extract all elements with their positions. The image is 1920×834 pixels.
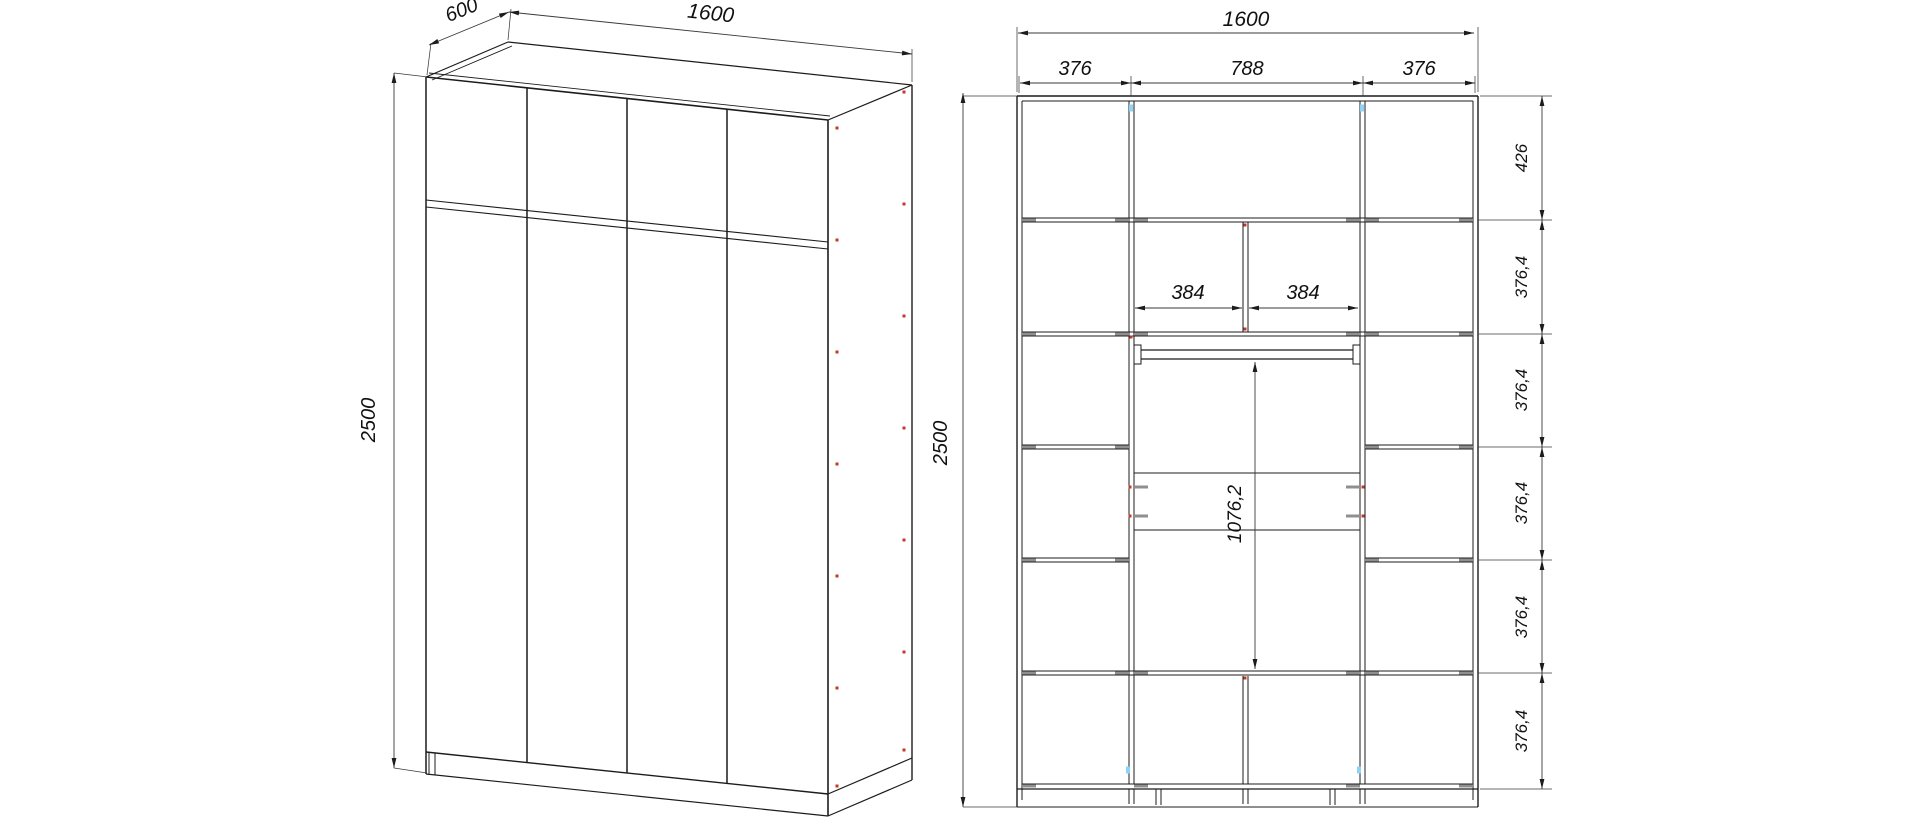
- connector-mark: [1459, 785, 1473, 788]
- structure-line: [429, 73, 830, 116]
- dimension-arrow: [1135, 306, 1145, 311]
- fastener-hole-mark: [1244, 224, 1247, 227]
- structure-line: [828, 758, 912, 794]
- fastener-hole-mark: [836, 785, 839, 788]
- hinge-mark: [1129, 105, 1133, 112]
- extension-line: [394, 768, 427, 773]
- dimension-label-hanging-height: 1076,2: [1225, 485, 1246, 544]
- dimension-arrow: [1540, 560, 1545, 570]
- dimension-label-row-5: 376,4: [1512, 596, 1531, 639]
- dimension-arrow: [1540, 220, 1545, 230]
- fastener-hole-mark: [1130, 336, 1133, 339]
- dimension-label-cell-right: 384: [1286, 282, 1319, 304]
- dimension-label-col-left: 376: [1058, 58, 1092, 80]
- connector-mark: [1022, 672, 1036, 675]
- dimension-arrow: [1540, 663, 1545, 673]
- fastener-hole-mark: [903, 539, 906, 542]
- fastener-hole-mark: [1129, 486, 1132, 489]
- rail-end-plate: [1353, 345, 1360, 364]
- connector-mark: [1365, 219, 1379, 222]
- fastener-hole-mark: [836, 127, 839, 130]
- dimension-arrow: [499, 12, 509, 18]
- fastener-hole-mark: [836, 239, 839, 242]
- fastener-hole-mark: [836, 463, 839, 466]
- fastener-hole-mark: [1362, 486, 1365, 489]
- fastener-hole-mark: [903, 91, 906, 94]
- connector-mark: [1134, 333, 1148, 336]
- dimension-arrow: [1540, 437, 1545, 447]
- dimension-label-col-mid: 788: [1230, 58, 1263, 80]
- connector-mark: [1459, 446, 1473, 449]
- dimension-label-cell-left: 384: [1171, 282, 1204, 304]
- dimension-arrow: [1121, 81, 1131, 86]
- dimension-arrow: [961, 93, 966, 103]
- dimension-arrow: [1465, 81, 1475, 86]
- fastener-hole-mark: [1244, 328, 1247, 331]
- dimension-arrow: [961, 797, 966, 807]
- connector-mark: [1134, 219, 1148, 222]
- dimension-arrow: [1253, 659, 1258, 669]
- connector-mark: [1022, 446, 1036, 449]
- dimension-arrow: [902, 51, 912, 56]
- connector-mark: [1134, 785, 1148, 788]
- connector-mark: [1459, 333, 1473, 336]
- dimension-arrow: [1540, 210, 1545, 220]
- dimension-arrow: [392, 758, 397, 768]
- dimension-arrow: [1232, 306, 1242, 311]
- dimension-label-row-top: 426: [1512, 143, 1531, 172]
- dimension-arrow: [1020, 81, 1030, 86]
- fastener-hole-mark: [903, 315, 906, 318]
- fastener-hole-mark: [1362, 515, 1365, 518]
- hinge-mark: [1360, 105, 1364, 112]
- dimension-arrow: [1540, 447, 1545, 457]
- dimension-arrow: [1540, 673, 1545, 683]
- structure-line: [508, 42, 912, 85]
- connector-mark: [1346, 219, 1360, 222]
- extension-line: [508, 9, 511, 40]
- dimension-label-row-3: 376,4: [1512, 369, 1531, 412]
- dimension-arrow: [392, 73, 397, 83]
- connector-mark: [1115, 333, 1129, 336]
- fastener-hole-mark: [836, 351, 839, 354]
- connector-mark: [1115, 672, 1129, 675]
- fastener-hole-mark: [1244, 677, 1247, 680]
- connector-mark: [1134, 672, 1148, 675]
- connector-mark: [1459, 672, 1473, 675]
- fastener-hole-mark: [836, 687, 839, 690]
- dimension-label-width-3d: 1600: [686, 0, 735, 27]
- dimension-arrow: [1018, 31, 1028, 36]
- dimension-label-height-3d: 2500: [358, 398, 380, 444]
- fastener-hole-mark: [903, 203, 906, 206]
- dimension-arrow: [1253, 362, 1258, 372]
- connector-mark: [1365, 672, 1379, 675]
- connector-mark: [1022, 333, 1036, 336]
- connector-mark: [1346, 785, 1360, 788]
- hinge-mark: [1126, 767, 1130, 774]
- rail-end-plate: [1134, 345, 1141, 364]
- dimension-arrow: [1249, 306, 1259, 311]
- hinge-mark: [1357, 767, 1361, 774]
- structure-line: [426, 42, 508, 77]
- connector-mark: [1365, 446, 1379, 449]
- connector-mark: [1346, 333, 1360, 336]
- connector-mark: [1022, 785, 1036, 788]
- dimension-arrow: [1540, 550, 1545, 560]
- fastener-hole-mark: [903, 651, 906, 654]
- dimension-arrow: [1348, 306, 1358, 311]
- dimension-arrow: [1464, 31, 1474, 36]
- extension-line: [427, 43, 431, 75]
- connector-mark: [1459, 219, 1473, 222]
- connector-mark: [1115, 446, 1129, 449]
- structure-line: [828, 780, 912, 816]
- fastener-hole-mark: [903, 749, 906, 752]
- dimension-arrow: [1540, 779, 1545, 789]
- dimension-label-row-4: 376,4: [1512, 482, 1531, 525]
- dimension-arrow: [1131, 81, 1141, 86]
- wardrobe-technical-drawing: 25006001600160037678837638438425001076,2…: [0, 0, 1920, 834]
- dimension-arrow: [1540, 334, 1545, 344]
- connector-mark: [1022, 219, 1036, 222]
- dimension-arrow: [1540, 324, 1545, 334]
- dimension-label-row-2: 376,4: [1512, 256, 1531, 299]
- structure-line: [432, 46, 512, 80]
- structure-line: [426, 774, 828, 816]
- connector-mark: [1022, 559, 1036, 562]
- dimension-arrow: [1363, 81, 1373, 86]
- extension-line: [394, 73, 428, 77]
- structure-line: [828, 85, 912, 120]
- dimension-label-row-6: 376,4: [1512, 710, 1531, 753]
- fastener-hole-mark: [836, 575, 839, 578]
- connector-mark: [1134, 486, 1148, 489]
- connector-mark: [1346, 672, 1360, 675]
- dimension-label-width-elev: 1600: [1223, 8, 1270, 31]
- fastener-hole-mark: [903, 427, 906, 430]
- connector-mark: [1459, 559, 1473, 562]
- connector-mark: [1115, 559, 1129, 562]
- fastener-hole-mark: [1129, 515, 1132, 518]
- connector-mark: [1346, 486, 1360, 489]
- connector-mark: [1115, 219, 1129, 222]
- connector-mark: [1134, 515, 1148, 518]
- dimension-arrow: [1353, 81, 1363, 86]
- dimension-label-col-right: 376: [1402, 58, 1436, 80]
- dimension-label-depth-3d: 600: [442, 0, 481, 27]
- dimension-arrow: [1540, 96, 1545, 106]
- connector-mark: [1365, 559, 1379, 562]
- connector-mark: [1365, 333, 1379, 336]
- dimension-label-height-elev: 2500: [930, 421, 952, 467]
- dimension-arrow: [429, 39, 439, 45]
- connector-mark: [1346, 515, 1360, 518]
- drawing-canvas: 25006001600160037678837638438425001076,2…: [0, 0, 1920, 834]
